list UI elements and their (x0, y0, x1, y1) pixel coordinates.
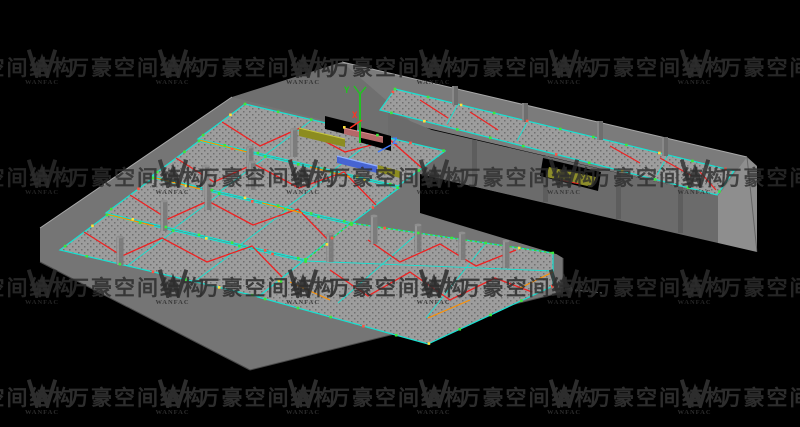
cad-viewport[interactable]: Y X Z WANFAC万豪空间结构WANFAC万豪空间结构WANFAC万豪空间… (0, 0, 800, 427)
axis-x-label: X (352, 111, 358, 121)
column (117, 236, 124, 265)
corner-leader (565, 287, 602, 293)
column (415, 224, 422, 252)
axis-z-label: Z (392, 137, 398, 147)
column (503, 240, 510, 268)
column (459, 232, 466, 260)
column (205, 181, 212, 210)
column (249, 161, 256, 190)
column (291, 128, 298, 157)
column (371, 215, 378, 244)
structure-3d-model: Y X Z (0, 0, 800, 427)
axis-y-label: Y (344, 86, 350, 96)
